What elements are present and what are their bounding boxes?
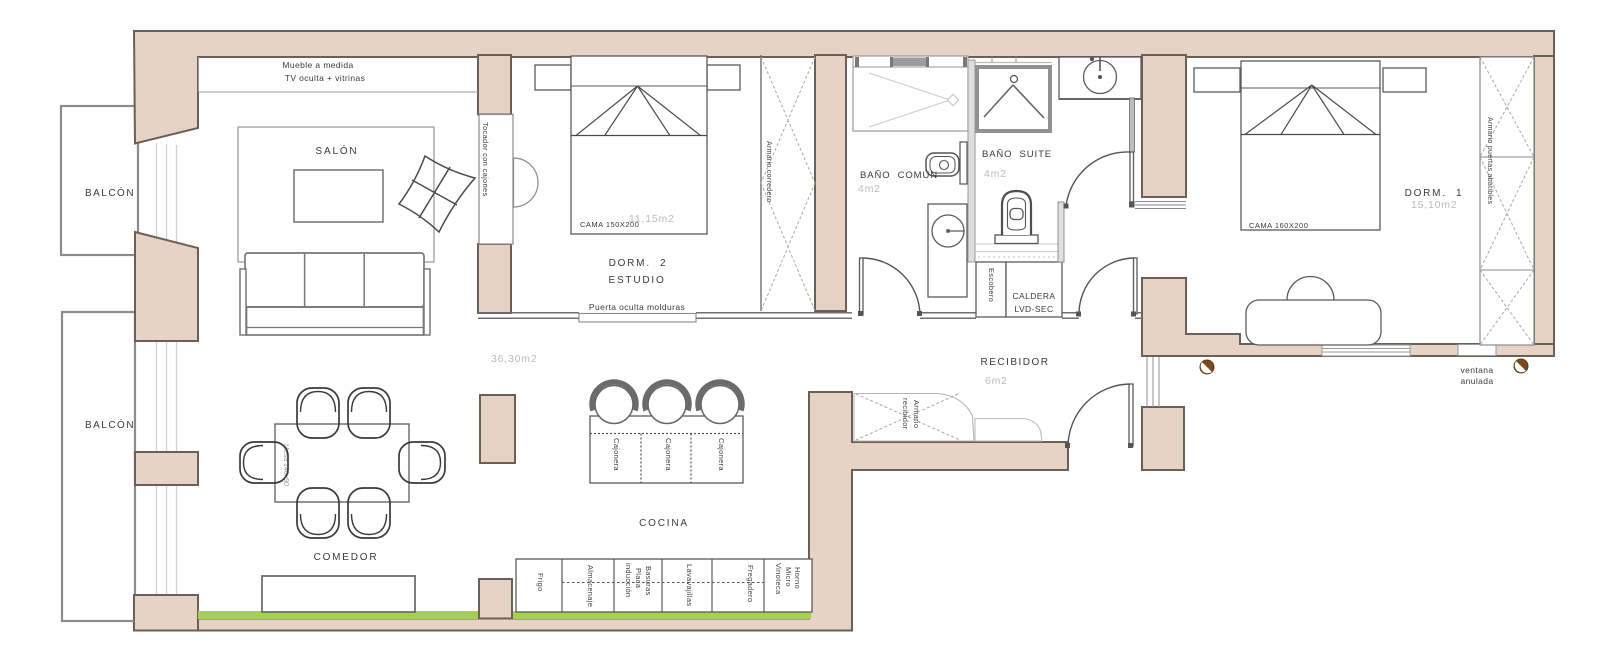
svg-text:Cajonera: Cajonera bbox=[717, 438, 726, 471]
svg-text:recibidor: recibidor bbox=[901, 398, 910, 430]
svg-text:Mueble a medida: Mueble a medida bbox=[282, 60, 353, 70]
svg-text:DORM. 2: DORM. 2 bbox=[609, 258, 668, 269]
svg-text:COCINA: COCINA bbox=[639, 518, 689, 529]
svg-text:BALCÓN: BALCÓN bbox=[85, 418, 135, 431]
svg-text:BAÑO COMÚN: BAÑO COMÚN bbox=[860, 170, 938, 181]
svg-text:Cajonera: Cajonera bbox=[664, 438, 673, 471]
svg-text:Frigo: Frigo bbox=[536, 573, 545, 592]
svg-text:COMEDOR: COMEDOR bbox=[314, 552, 379, 563]
svg-text:CAMA 160X200: CAMA 160X200 bbox=[1249, 221, 1308, 230]
svg-text:inducción: inducción bbox=[624, 563, 633, 597]
svg-text:Lavavajillas: Lavavajillas bbox=[685, 564, 694, 606]
svg-text:Horno: Horno bbox=[793, 567, 802, 589]
svg-text:4m2: 4m2 bbox=[858, 183, 881, 195]
svg-text:Armario corredero: Armario corredero bbox=[765, 141, 772, 203]
svg-text:LVD-SEC: LVD-SEC bbox=[1014, 304, 1053, 314]
svg-text:15,10m2: 15,10m2 bbox=[1411, 199, 1457, 211]
svg-text:anulada: anulada bbox=[1460, 376, 1493, 386]
svg-text:Escobero: Escobero bbox=[987, 268, 996, 302]
svg-text:Tocador con cajones: Tocador con cajones bbox=[481, 122, 490, 197]
svg-text:Almacenaje: Almacenaje bbox=[586, 565, 595, 607]
svg-text:11,15m2: 11,15m2 bbox=[629, 213, 675, 225]
svg-text:TV oculta + vitrinas: TV oculta + vitrinas bbox=[285, 73, 366, 83]
svg-text:SALÓN: SALÓN bbox=[316, 144, 359, 157]
svg-text:Cajonera: Cajonera bbox=[612, 438, 621, 471]
svg-text:Puerta oculta molduras: Puerta oculta molduras bbox=[589, 302, 685, 312]
svg-text:Basuras: Basuras bbox=[644, 566, 653, 596]
svg-text:BAÑO SUITE: BAÑO SUITE bbox=[982, 149, 1052, 160]
svg-text:DORM. 1: DORM. 1 bbox=[1405, 188, 1464, 199]
svg-text:4m2: 4m2 bbox=[984, 168, 1007, 180]
svg-text:Fregadero: Fregadero bbox=[746, 565, 755, 602]
svg-text:CALDERA: CALDERA bbox=[1013, 291, 1056, 301]
svg-text:BALCÓN: BALCÓN bbox=[85, 186, 135, 199]
svg-text:RECIBIDOR: RECIBIDOR bbox=[980, 357, 1049, 368]
svg-text:Placa: Placa bbox=[634, 568, 643, 589]
svg-text:Micro: Micro bbox=[784, 567, 793, 587]
svg-text:ventana: ventana bbox=[1460, 365, 1493, 375]
svg-text:36,30m2: 36,30m2 bbox=[491, 353, 537, 365]
svg-text:ESTUDIO: ESTUDIO bbox=[608, 275, 665, 286]
svg-text:Armario: Armario bbox=[912, 400, 921, 428]
svg-text:6m2: 6m2 bbox=[985, 375, 1008, 387]
svg-text:Armario puertas abatibles: Armario puertas abatibles bbox=[1486, 117, 1493, 204]
svg-text:Vinoteca: Vinoteca bbox=[774, 563, 783, 595]
